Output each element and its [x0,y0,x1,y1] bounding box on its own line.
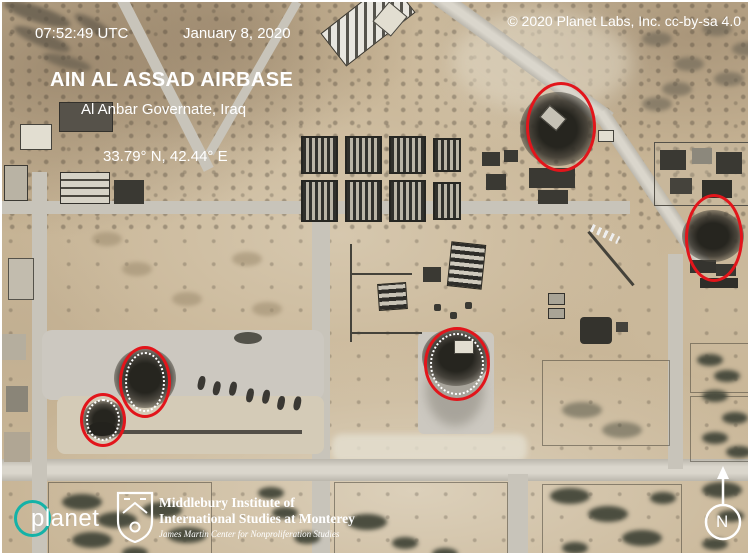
planet-logo-wordmark: planet [31,505,99,533]
location-subtitle: Al Anbar Governate, Iraq [81,101,246,118]
strike-damage-circle [424,327,490,401]
institute-shield-icon [115,491,155,543]
institute-name-line1: Middlebury Institute of [159,495,355,511]
capture-date: January 8, 2020 [183,25,291,42]
strike-damage-circle [119,346,171,418]
north-arrow-icon [701,466,745,554]
strike-damage-circle [685,194,743,282]
impact-dotted-ring [125,352,165,412]
location-coordinates: 33.79° N, 42.44° E [103,148,228,165]
institute-name-line2: International Studies at Monterey [159,511,355,527]
institute-name: Middlebury Institute of International St… [159,495,355,539]
copyright-notice: © 2020 Planet Labs, Inc. cc-by-sa 4.0 [507,13,741,29]
impact-dotted-ring [86,399,120,441]
satellite-image: 07:52:49 UTC January 8, 2020 © 2020 Plan… [0,0,750,555]
north-label: N [716,512,728,532]
strike-damage-circle [80,393,126,447]
institute-center-line: James Martin Center for Nonproliferation… [159,529,355,539]
strike-damage-circle [526,82,596,172]
page-title: AIN AL ASSAD AIRBASE [50,69,293,92]
impact-dotted-ring [430,333,484,395]
capture-timestamp: 07:52:49 UTC [35,25,128,42]
